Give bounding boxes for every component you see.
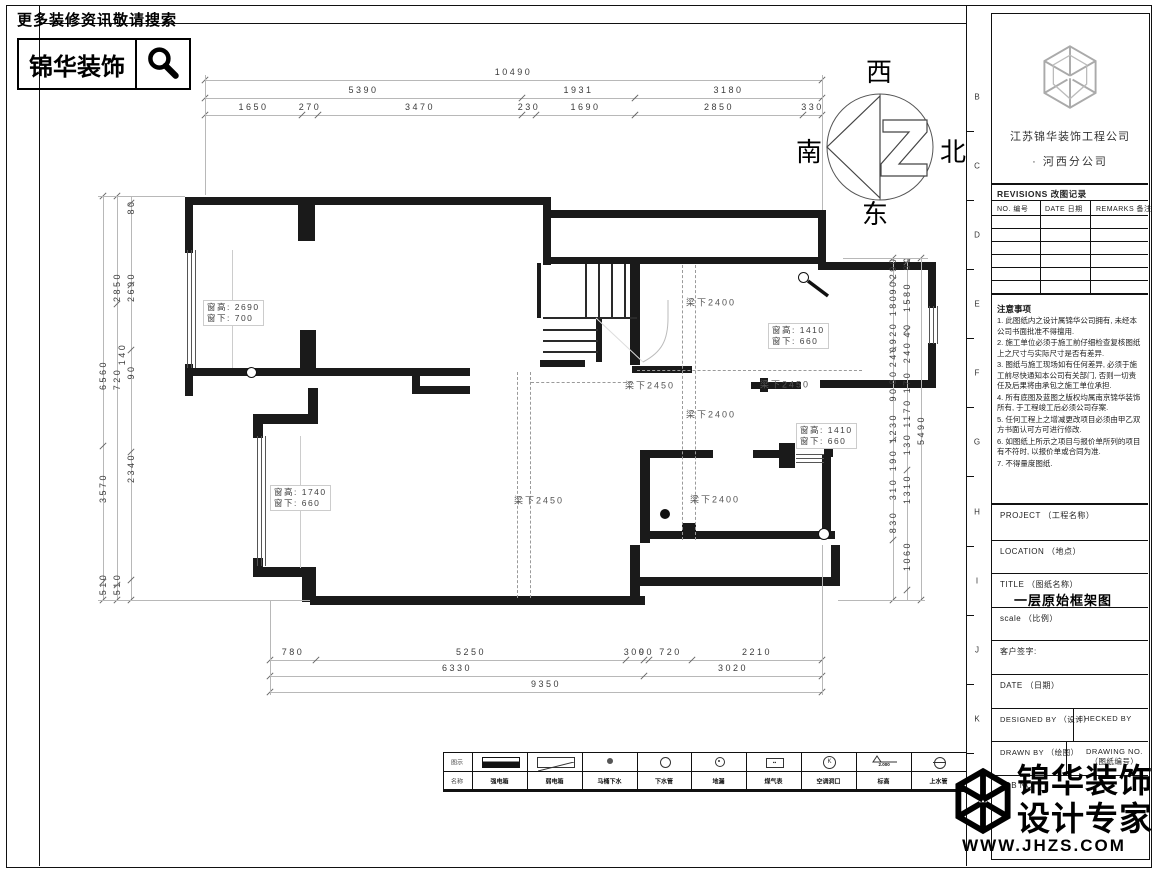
circle-dot-icon <box>715 757 725 767</box>
legend-column-line <box>856 752 857 791</box>
footer-brand-line2: 设计专家 <box>1017 792 1153 840</box>
legend-item-name: 空调洞口 <box>816 777 840 786</box>
diag-rect-icon <box>537 757 575 768</box>
legend-column-line <box>691 752 692 791</box>
circle-k-icon: K <box>823 756 836 769</box>
legend-item-name: 弱电箱 <box>545 777 563 786</box>
level-mark-icon: 2.000 <box>871 755 897 768</box>
legend-column-line <box>443 752 444 791</box>
level-value: 2.000 <box>879 762 890 767</box>
legend-column-line <box>582 752 583 791</box>
circle-dot-center <box>718 760 720 762</box>
legend-header-symbol: 图示 <box>451 758 463 767</box>
legend-header-name: 名称 <box>451 777 463 786</box>
meter-box-icon: ▪▪ <box>766 758 784 768</box>
legend-column-line <box>746 752 747 791</box>
filled-bar-icon <box>482 757 520 768</box>
footer-cube-icon <box>950 766 1016 841</box>
legend-item-name: 马桶下水 <box>597 777 621 786</box>
drawing-sheet: 更多装修资讯敬请搜索 锦华装饰 西 北 南 东 梁下2400梁下2450梁下24… <box>0 0 1158 873</box>
small-filled-circle-icon <box>607 758 613 764</box>
legend-item-name: 地漏 <box>712 777 724 786</box>
legend-column-line <box>911 752 912 791</box>
footer-url: WWW.JHZS.COM <box>937 836 1151 856</box>
legend-column-line <box>637 752 638 791</box>
legend-column-line <box>801 752 802 791</box>
legend-item-name: 标高 <box>877 777 889 786</box>
legend-item-name: 下水管 <box>655 777 673 786</box>
legend-column-line <box>527 752 528 791</box>
legend-strip: 图示 名称 强电箱弱电箱马桶下水下水管地漏▪▪煤气表K空调洞口2.000标高上水… <box>0 0 1158 873</box>
footer-logo: 锦华装饰 设计专家 WWW.JHZS.COM <box>925 752 1158 873</box>
legend-item-name: 强电箱 <box>490 777 508 786</box>
legend-item-name: 煤气表 <box>764 777 782 786</box>
legend-column-line <box>472 752 473 791</box>
open-circle-icon <box>660 757 671 768</box>
